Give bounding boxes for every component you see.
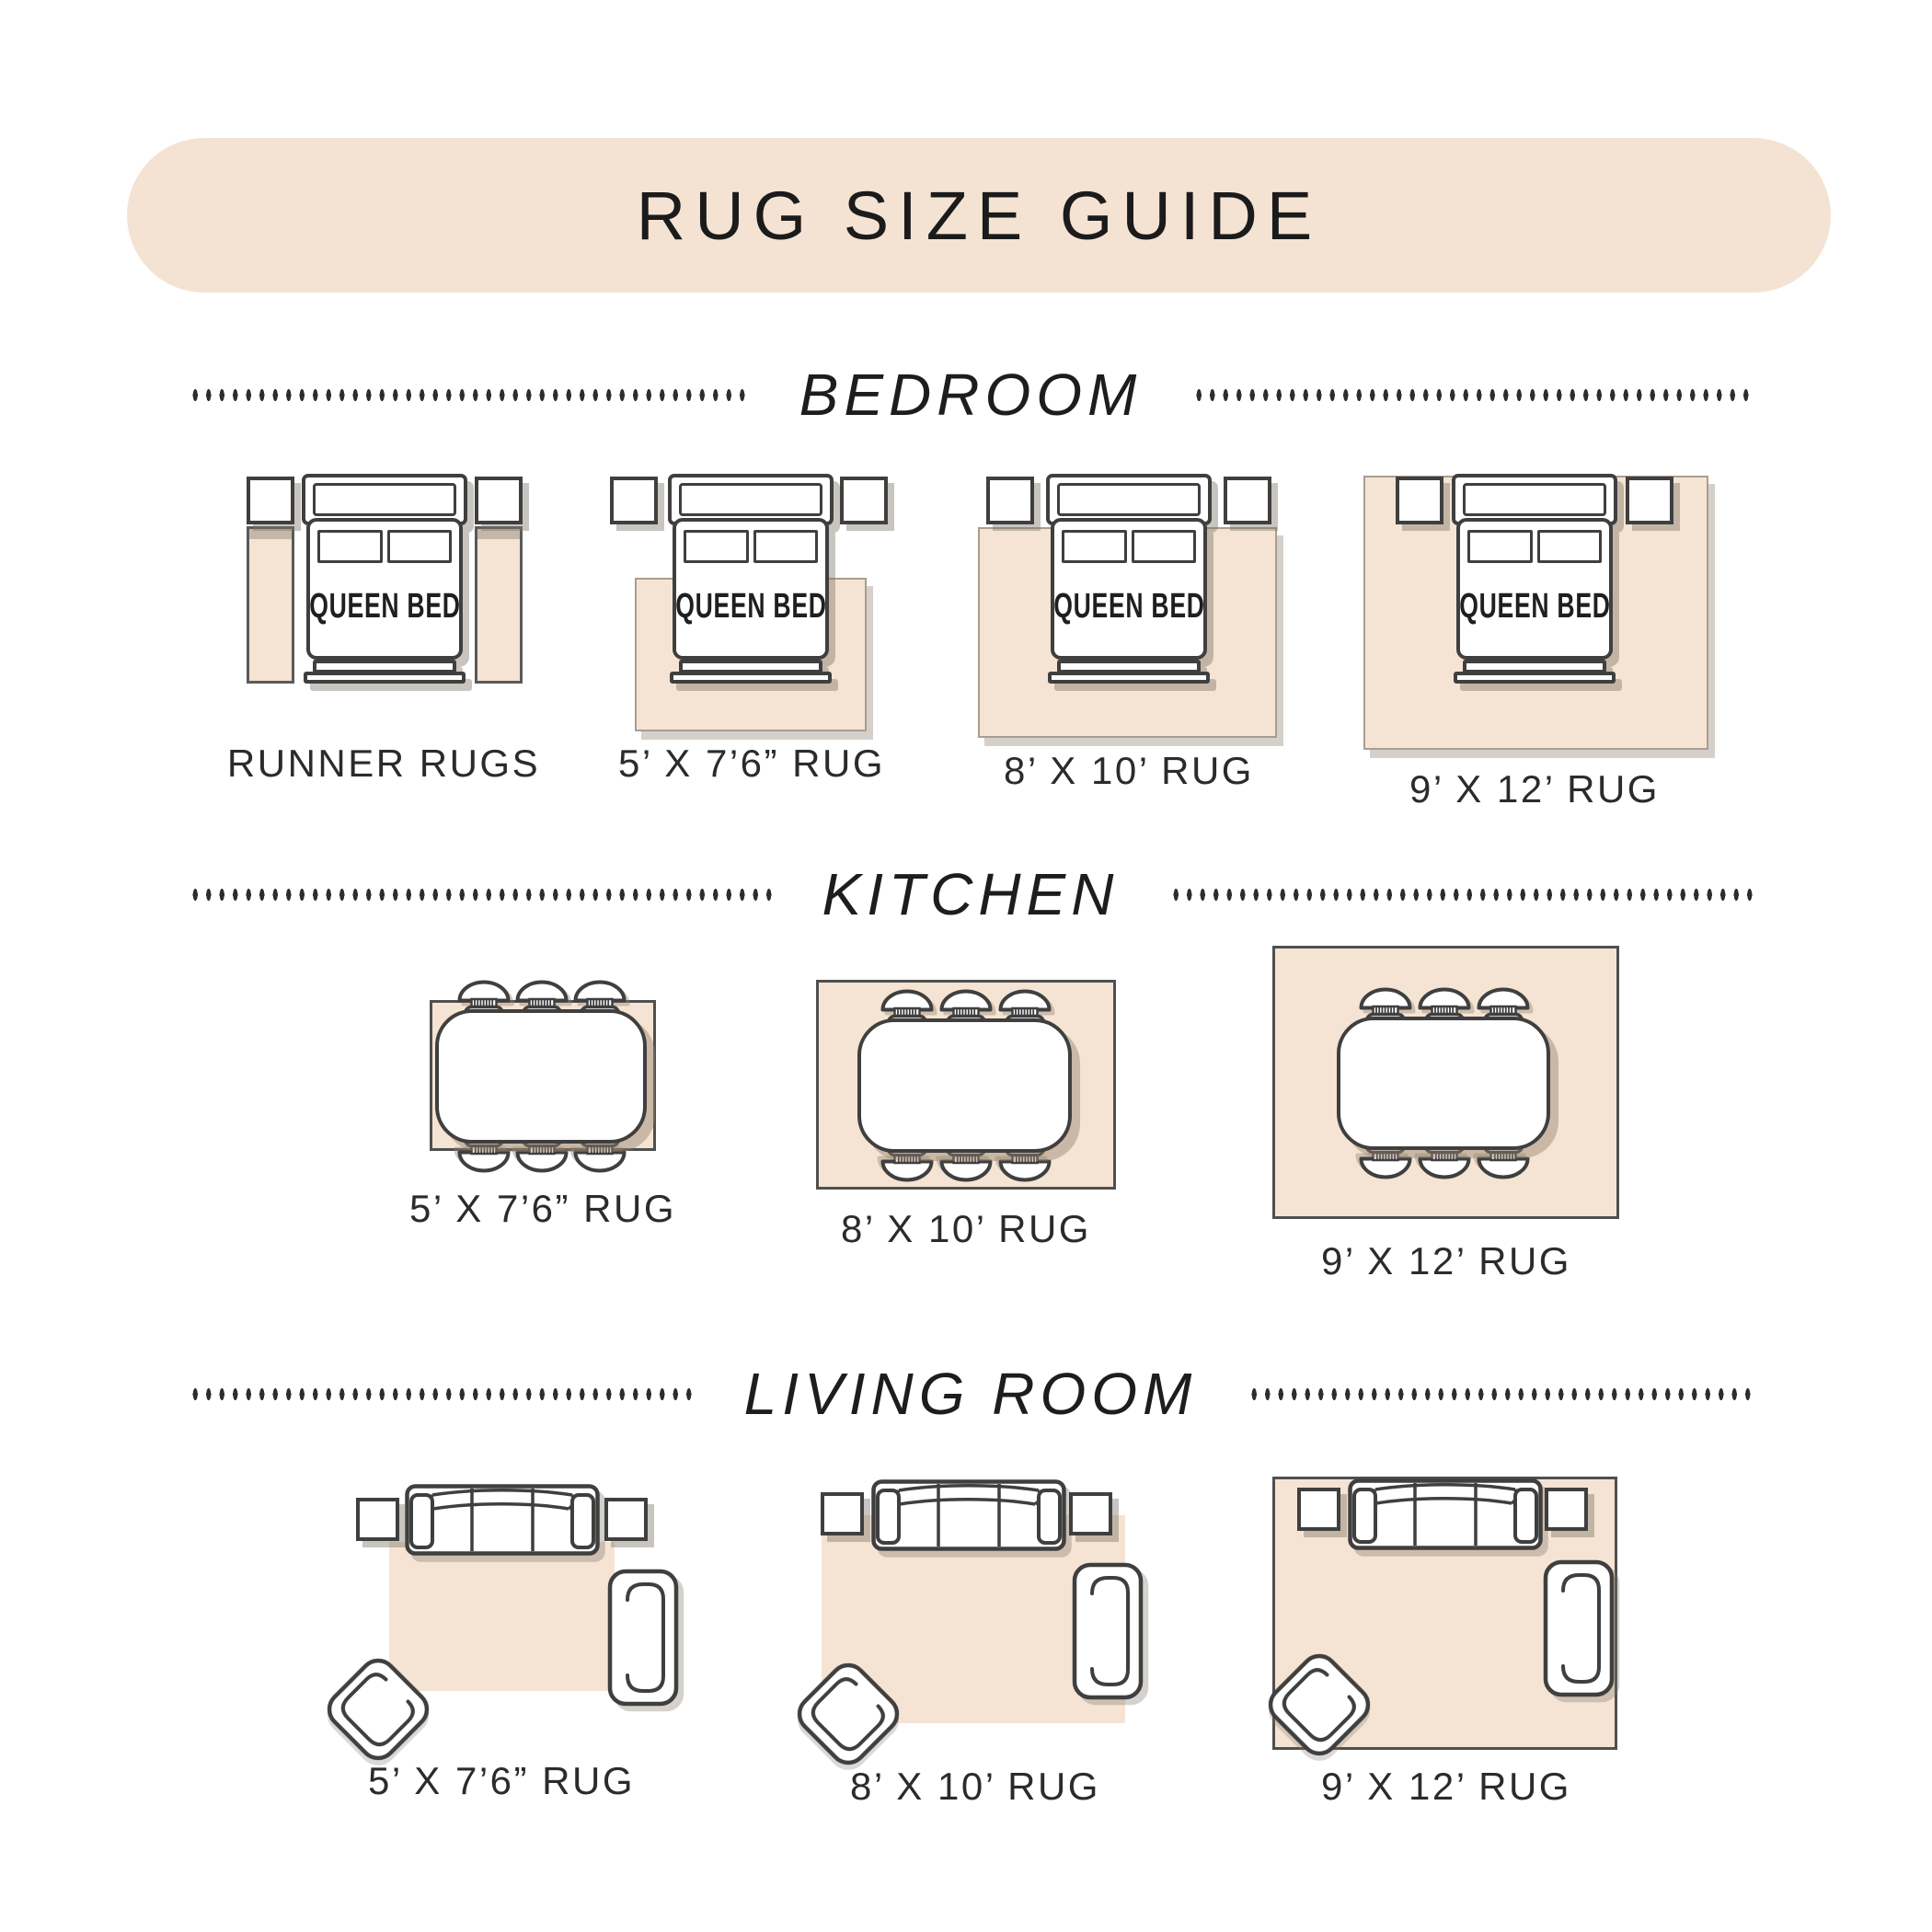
- rug: [389, 1542, 615, 1691]
- armchair-icon: [1072, 1562, 1144, 1700]
- section-title-kitchen: KITCHEN: [822, 860, 1120, 928]
- dining-table-icon: [857, 1018, 1072, 1153]
- armchair-icon: [1543, 1559, 1615, 1697]
- armchair-icon: [607, 1569, 679, 1707]
- pillow-row: [1062, 530, 1196, 563]
- queen-bed-top-view-icon: QUEEN BED: [1452, 474, 1617, 684]
- end-table-icon: [821, 1492, 864, 1535]
- dotted-divider: [1248, 1388, 1753, 1400]
- pillow-icon: [317, 530, 383, 563]
- bed-label: QUEEN BED: [1459, 587, 1610, 627]
- diagram-label: 9’ X 12’ RUG: [1409, 767, 1660, 811]
- pillow-icon: [1132, 530, 1197, 563]
- bed-label: QUEEN BED: [1053, 587, 1204, 627]
- bed-mattress: QUEEN BED: [306, 518, 463, 660]
- section-header-living-room: LIVING ROOM: [189, 1364, 1753, 1423]
- queen-bed-top-view-icon: QUEEN BED: [1046, 474, 1212, 684]
- bed-mattress: QUEEN BED: [673, 518, 829, 660]
- sofa-top-view-icon: [1348, 1478, 1543, 1550]
- bed-footboard: [670, 672, 832, 684]
- bed-footboard: [1048, 672, 1210, 684]
- bed-footboard: [304, 672, 466, 684]
- diagram-label: 5’ X 7’6” RUG: [409, 1187, 676, 1231]
- end-table-icon: [1545, 1488, 1588, 1531]
- diagram-label: 8’ X 10’ RUG: [1004, 749, 1254, 793]
- pillow-icon: [684, 530, 749, 563]
- queen-bed-top-view-icon: QUEEN BED: [302, 474, 467, 684]
- nightstand-icon: [1626, 477, 1673, 524]
- pillow-row: [317, 530, 452, 563]
- section-header-kitchen: KITCHEN: [189, 865, 1753, 924]
- bed-footboard: [1454, 672, 1616, 684]
- pillow-icon: [1537, 530, 1603, 563]
- nightstand-icon: [610, 477, 658, 524]
- end-table-icon: [356, 1498, 399, 1541]
- dotted-divider: [1169, 889, 1753, 901]
- runner-rug-icon: [247, 526, 294, 684]
- pillow-row: [684, 530, 818, 563]
- title-banner: RUG SIZE GUIDE: [127, 138, 1831, 293]
- nightstand-icon: [840, 477, 888, 524]
- runner-rug-icon: [475, 526, 523, 684]
- dotted-divider: [189, 389, 749, 401]
- nightstand-icon: [1396, 477, 1443, 524]
- rug-size-guide-infographic: RUG SIZE GUIDE BEDROOM KITCHEN LIVING RO…: [0, 0, 1932, 1932]
- bed-label: QUEEN BED: [675, 587, 826, 627]
- bed-mattress: QUEEN BED: [1051, 518, 1207, 660]
- nightstand-icon: [247, 477, 294, 524]
- diagram-label: 5’ X 7’6” RUG: [368, 1759, 635, 1803]
- page-title: RUG SIZE GUIDE: [637, 177, 1321, 255]
- dotted-divider: [189, 1388, 694, 1400]
- diagram-label: 9’ X 12’ RUG: [1321, 1239, 1571, 1283]
- pillow-icon: [387, 530, 453, 563]
- nightstand-icon: [1224, 477, 1271, 524]
- diagram-label: 9’ X 12’ RUG: [1321, 1765, 1571, 1809]
- diagram-label: 8’ X 10’ RUG: [841, 1207, 1091, 1251]
- section-header-bedroom: BEDROOM: [189, 365, 1753, 424]
- end-table-icon: [1297, 1488, 1340, 1531]
- dining-table-icon: [435, 1009, 647, 1144]
- pillow-icon: [1062, 530, 1127, 563]
- dotted-divider: [1192, 389, 1753, 401]
- dining-table-icon: [1337, 1017, 1550, 1150]
- bed-label: QUEEN BED: [309, 587, 460, 627]
- end-table-icon: [1069, 1492, 1112, 1535]
- diagram-label: 8’ X 10’ RUG: [850, 1765, 1100, 1809]
- end-table-icon: [604, 1498, 648, 1541]
- pillow-icon: [1467, 530, 1533, 563]
- bed-mattress: QUEEN BED: [1456, 518, 1613, 660]
- dotted-divider: [189, 889, 772, 901]
- pillow-row: [1467, 530, 1602, 563]
- pillow-icon: [753, 530, 819, 563]
- section-title-living-room: LIVING ROOM: [744, 1360, 1198, 1428]
- nightstand-icon: [986, 477, 1034, 524]
- diagram-label: RUNNER RUGS: [227, 742, 540, 786]
- diagram-label: 5’ X 7’6” RUG: [618, 742, 885, 786]
- nightstand-icon: [475, 477, 523, 524]
- section-title-bedroom: BEDROOM: [799, 361, 1143, 429]
- sofa-top-view-icon: [405, 1484, 600, 1556]
- sofa-top-view-icon: [871, 1479, 1066, 1551]
- queen-bed-top-view-icon: QUEEN BED: [668, 474, 834, 684]
